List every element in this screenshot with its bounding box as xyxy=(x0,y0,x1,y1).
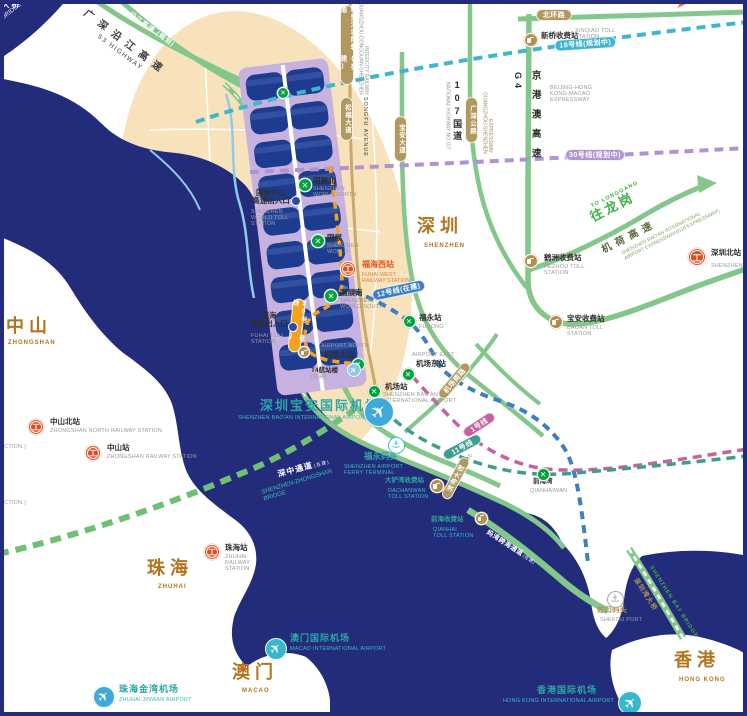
map-canvas: 北环路18号线(规划中)30号线(规划中)12号线(在建)20号线(在建)1号线… xyxy=(0,0,747,716)
land-hongkong xyxy=(610,634,747,716)
map-geography xyxy=(0,0,747,716)
